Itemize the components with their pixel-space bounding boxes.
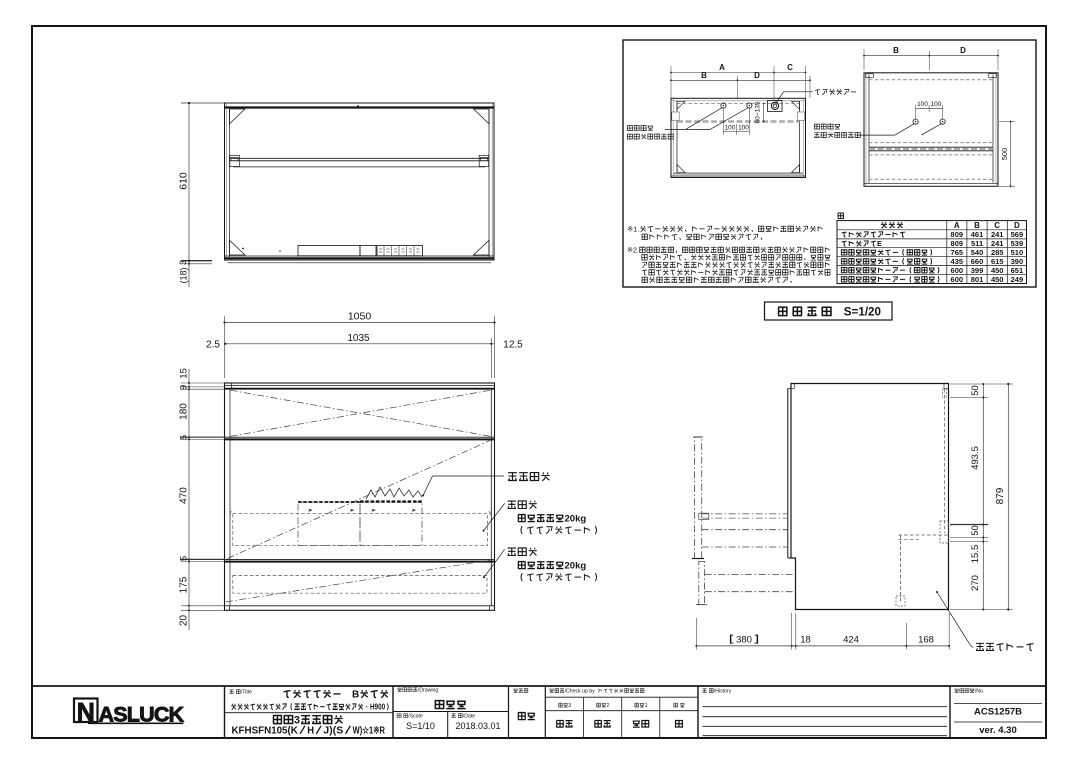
svg-text:ACS1257B: ACS1257B — [974, 707, 1022, 718]
svg-text:18: 18 — [800, 635, 811, 646]
svg-text:500: 500 — [1000, 148, 1009, 161]
svg-text:2.5: 2.5 — [206, 339, 220, 350]
svg-text:879: 879 — [995, 487, 1006, 504]
svg-text:D: D — [1014, 221, 1020, 230]
svg-text:2018.03.01: 2018.03.01 — [455, 721, 500, 731]
svg-text:20: 20 — [179, 615, 190, 627]
svg-text:/Drawing: /Drawing — [418, 688, 439, 694]
svg-text:651: 651 — [1011, 266, 1024, 275]
svg-text:600: 600 — [951, 266, 964, 275]
svg-text:5: 5 — [179, 435, 190, 440]
svg-text:399: 399 — [971, 266, 984, 275]
svg-text:J)(S: J)(S — [323, 726, 343, 737]
svg-text:435: 435 — [951, 257, 964, 266]
svg-text:B: B — [974, 221, 980, 230]
svg-text:450: 450 — [991, 275, 1004, 284]
svg-text:12.5: 12.5 — [503, 339, 523, 350]
svg-text:180: 180 — [179, 403, 190, 420]
svg-text:450: 450 — [991, 266, 1004, 275]
svg-text:765: 765 — [951, 248, 964, 257]
svg-text:15.5: 15.5 — [970, 545, 981, 564]
svg-text:N: N — [77, 699, 95, 727]
svg-text:(18): (18) — [179, 267, 189, 283]
svg-text:A: A — [719, 63, 725, 72]
svg-text:20kg: 20kg — [565, 514, 587, 525]
svg-text:B: B — [701, 71, 707, 80]
svg-text:S=1/10: S=1/10 — [406, 721, 435, 731]
svg-text:A: A — [954, 221, 960, 230]
svg-text:E: E — [877, 239, 882, 248]
svg-text:S=1/20: S=1/20 — [844, 307, 881, 319]
svg-text:/Scale: /Scale — [408, 714, 423, 720]
svg-text:C: C — [787, 63, 793, 72]
svg-text:60~135: 60~135 — [755, 101, 762, 123]
svg-text:ver. 4.30: ver. 4.30 — [979, 725, 1017, 736]
svg-text:D: D — [754, 71, 760, 80]
svg-text:H900: H900 — [370, 703, 386, 712]
svg-text:/Date: /Date — [463, 714, 476, 720]
svg-text:1050: 1050 — [348, 311, 372, 323]
svg-text:3: 3 — [568, 703, 571, 709]
svg-text:100: 100 — [917, 101, 928, 108]
svg-text:540: 540 — [971, 248, 984, 257]
svg-text:/No.: /No. — [975, 689, 985, 695]
svg-text:809: 809 — [951, 230, 964, 239]
svg-text:/Check up by: /Check up by — [565, 689, 596, 695]
svg-text:470: 470 — [179, 487, 190, 504]
svg-text:3: 3 — [178, 260, 188, 265]
svg-text:1035: 1035 — [347, 333, 370, 344]
svg-text:100: 100 — [725, 125, 736, 132]
svg-text:493.5: 493.5 — [970, 446, 981, 470]
svg-text:5: 5 — [179, 556, 190, 561]
svg-text:1: 1 — [645, 703, 648, 709]
svg-text:801: 801 — [971, 275, 984, 284]
svg-text:100: 100 — [738, 125, 749, 132]
svg-text:175: 175 — [179, 576, 190, 593]
svg-text:241: 241 — [991, 239, 1004, 248]
svg-text:660: 660 — [971, 257, 984, 266]
svg-text:9: 9 — [179, 385, 190, 390]
svg-text:539: 539 — [1011, 239, 1024, 248]
svg-text:KFHSFN105(K: KFHSFN105(K — [232, 726, 299, 737]
svg-text:/Title: /Title — [241, 690, 252, 696]
svg-text:569: 569 — [1011, 230, 1024, 239]
svg-text:C: C — [994, 221, 1000, 230]
svg-text:H: H — [307, 726, 314, 737]
svg-text:285: 285 — [991, 248, 1004, 257]
svg-text:511: 511 — [971, 239, 983, 248]
svg-text:100: 100 — [931, 101, 942, 108]
svg-text:241: 241 — [991, 230, 1004, 239]
svg-text:15: 15 — [179, 368, 190, 379]
svg-text:600: 600 — [951, 275, 964, 284]
svg-text:510: 510 — [1011, 248, 1024, 257]
svg-text:461: 461 — [971, 230, 984, 239]
svg-text:20kg: 20kg — [565, 561, 587, 572]
svg-text:※2.: ※2. — [627, 246, 639, 255]
svg-text:809: 809 — [951, 239, 964, 248]
svg-text:/History: /History — [714, 689, 732, 695]
svg-text:W)☆1※R: W)☆1※R — [353, 726, 386, 737]
svg-text:270: 270 — [970, 575, 981, 591]
svg-text:B: B — [352, 690, 359, 701]
svg-text:424: 424 — [843, 635, 859, 646]
svg-text:50: 50 — [970, 525, 981, 536]
svg-text:50: 50 — [970, 385, 981, 396]
svg-text:380: 380 — [736, 635, 752, 646]
svg-text:D: D — [960, 46, 966, 55]
svg-text:168: 168 — [918, 635, 934, 646]
svg-text:B: B — [893, 46, 899, 55]
svg-text:※1.: ※1. — [627, 225, 639, 234]
svg-text:390: 390 — [1011, 257, 1024, 266]
svg-text:610: 610 — [178, 172, 190, 190]
svg-text:249: 249 — [1011, 275, 1024, 284]
svg-text:2: 2 — [606, 703, 609, 709]
svg-text:615: 615 — [991, 257, 1004, 266]
